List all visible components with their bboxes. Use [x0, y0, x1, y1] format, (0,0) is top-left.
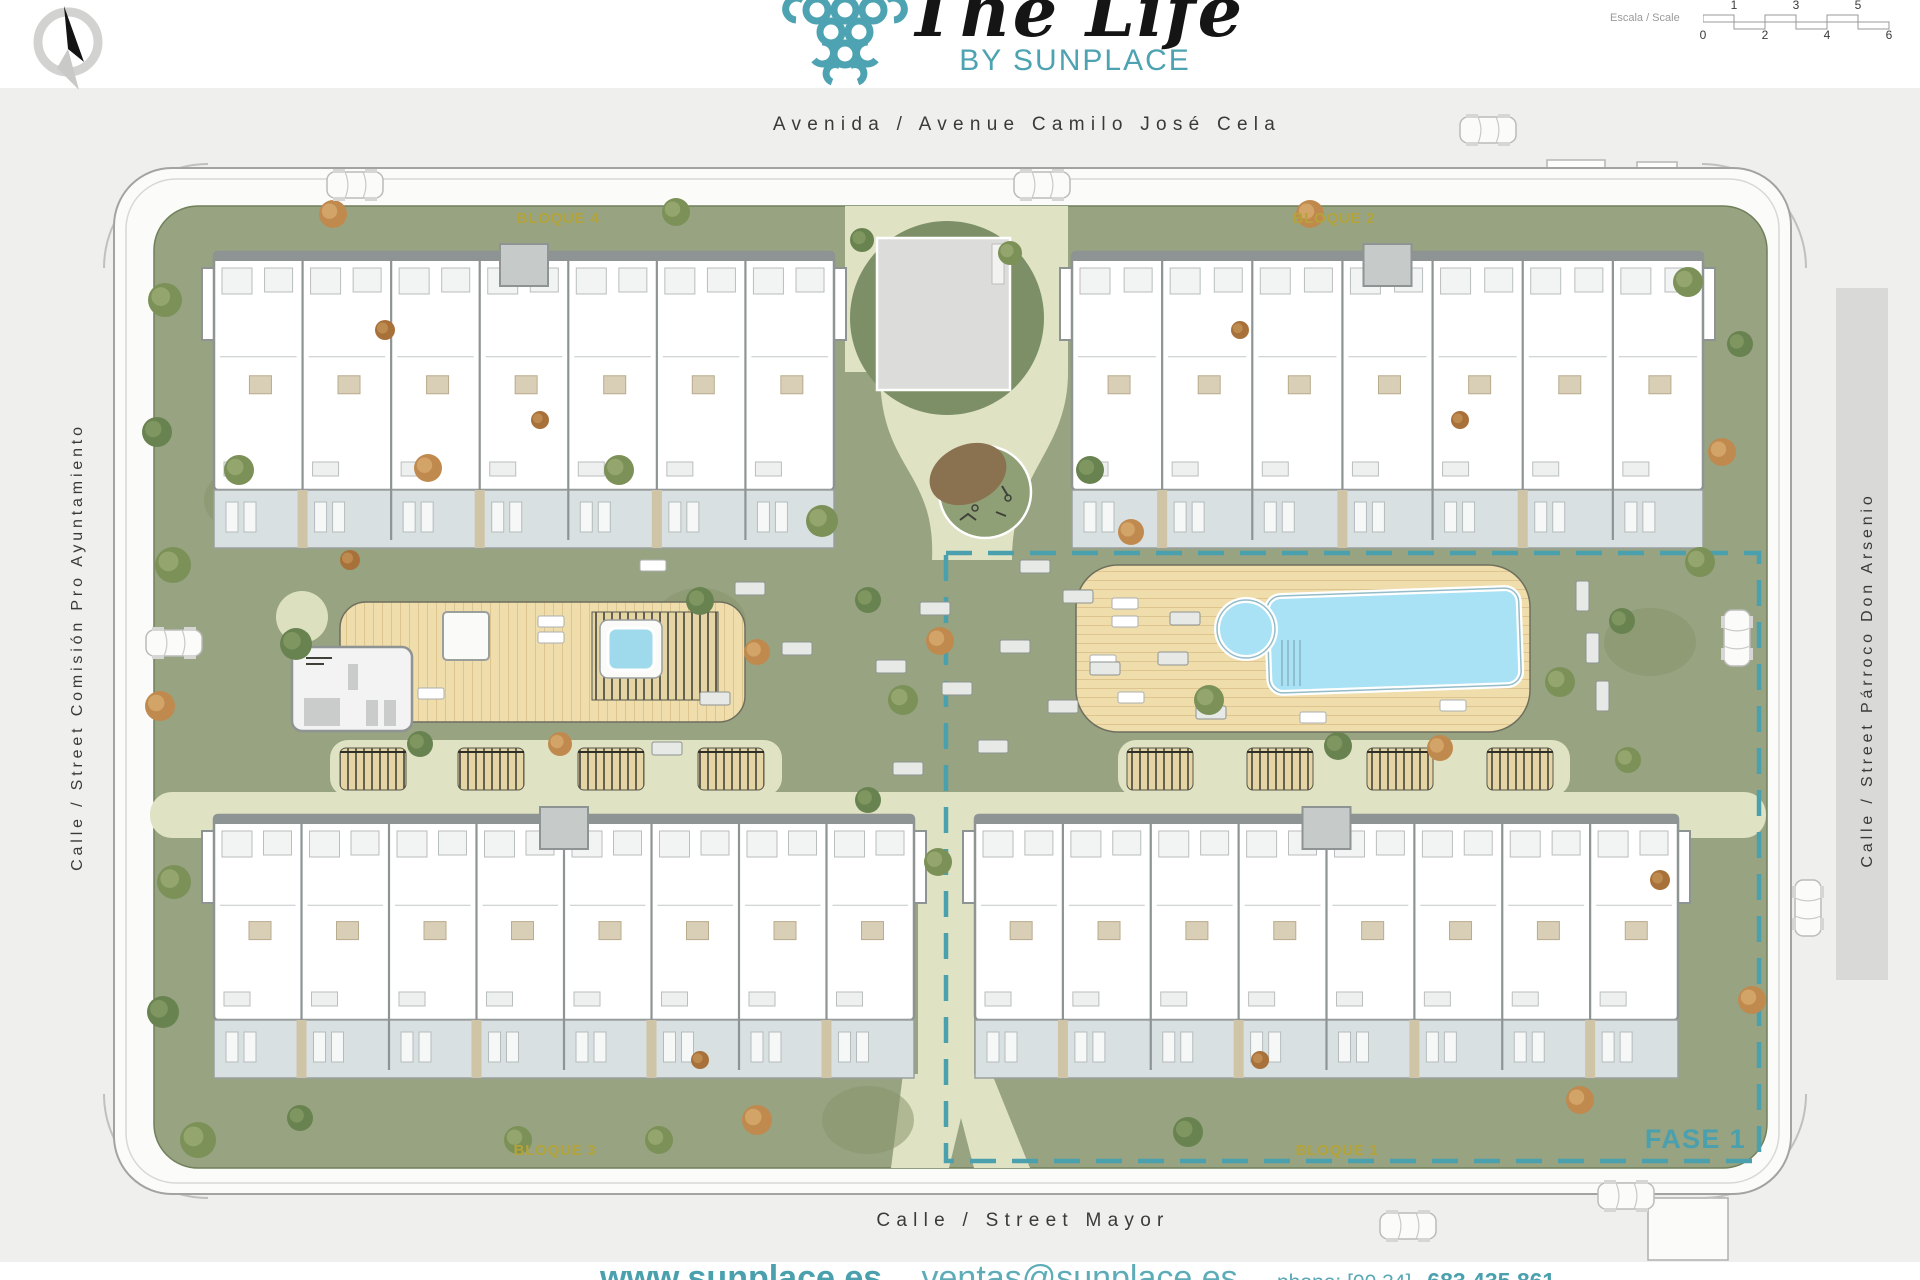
- scale-tick: 3: [1793, 0, 1800, 12]
- north-compass-icon: [28, 2, 114, 92]
- footer-website: www.sunplace.es: [600, 1259, 882, 1280]
- site-plan-page: The Life BY SUNPLACE Escala / Scale 1 3 …: [0, 0, 1920, 1280]
- street-label-bottom: Calle / Street Mayor: [823, 1210, 1223, 1232]
- scale-bar: 1 3 5 0 2 4 6: [1703, 0, 1895, 42]
- scale-label: Escala / Scale: [1610, 12, 1680, 24]
- bloque-4-label: BLOQUE 4: [458, 210, 658, 227]
- scale-tick: 2: [1762, 28, 1769, 42]
- scale-tick: 0: [1700, 28, 1707, 42]
- scale-tick: 5: [1855, 0, 1862, 12]
- scale-tick: 6: [1886, 28, 1893, 42]
- footer-phone-number: 683 435 861: [1427, 1268, 1555, 1280]
- logo-subtitle: BY SUNPLACE: [905, 44, 1245, 78]
- footer-separator: -: [898, 1269, 905, 1280]
- street-label-right: Calle / Street Párroco Don Arsenio: [1859, 492, 1877, 867]
- fase1-label: FASE 1: [1546, 1124, 1746, 1155]
- masterplan-drawing: [0, 0, 1920, 1280]
- bloque-3-label: BLOQUE 3: [455, 1142, 655, 1159]
- sunplace-logo-mark: [770, 0, 920, 90]
- street-label-left: Calle / Street Comisión Pro Ayuntamiento: [69, 423, 87, 871]
- footer-separator: -: [1254, 1269, 1261, 1280]
- footer-phone-label: phone: [00 34]: [1277, 1271, 1411, 1280]
- scale-tick: 1: [1731, 0, 1738, 12]
- footer-contact: www.sunplace.es - ventas@sunplace.es - p…: [600, 1259, 1555, 1280]
- bloque-1-label: BLOQUE 1: [1237, 1142, 1437, 1159]
- scale-tick: 4: [1824, 28, 1831, 42]
- footer-email: ventas@sunplace.es: [922, 1259, 1238, 1280]
- street-label-top: Avenida / Avenue Camilo José Cela: [707, 114, 1347, 136]
- bloque-2-label: BLOQUE 2: [1234, 210, 1434, 227]
